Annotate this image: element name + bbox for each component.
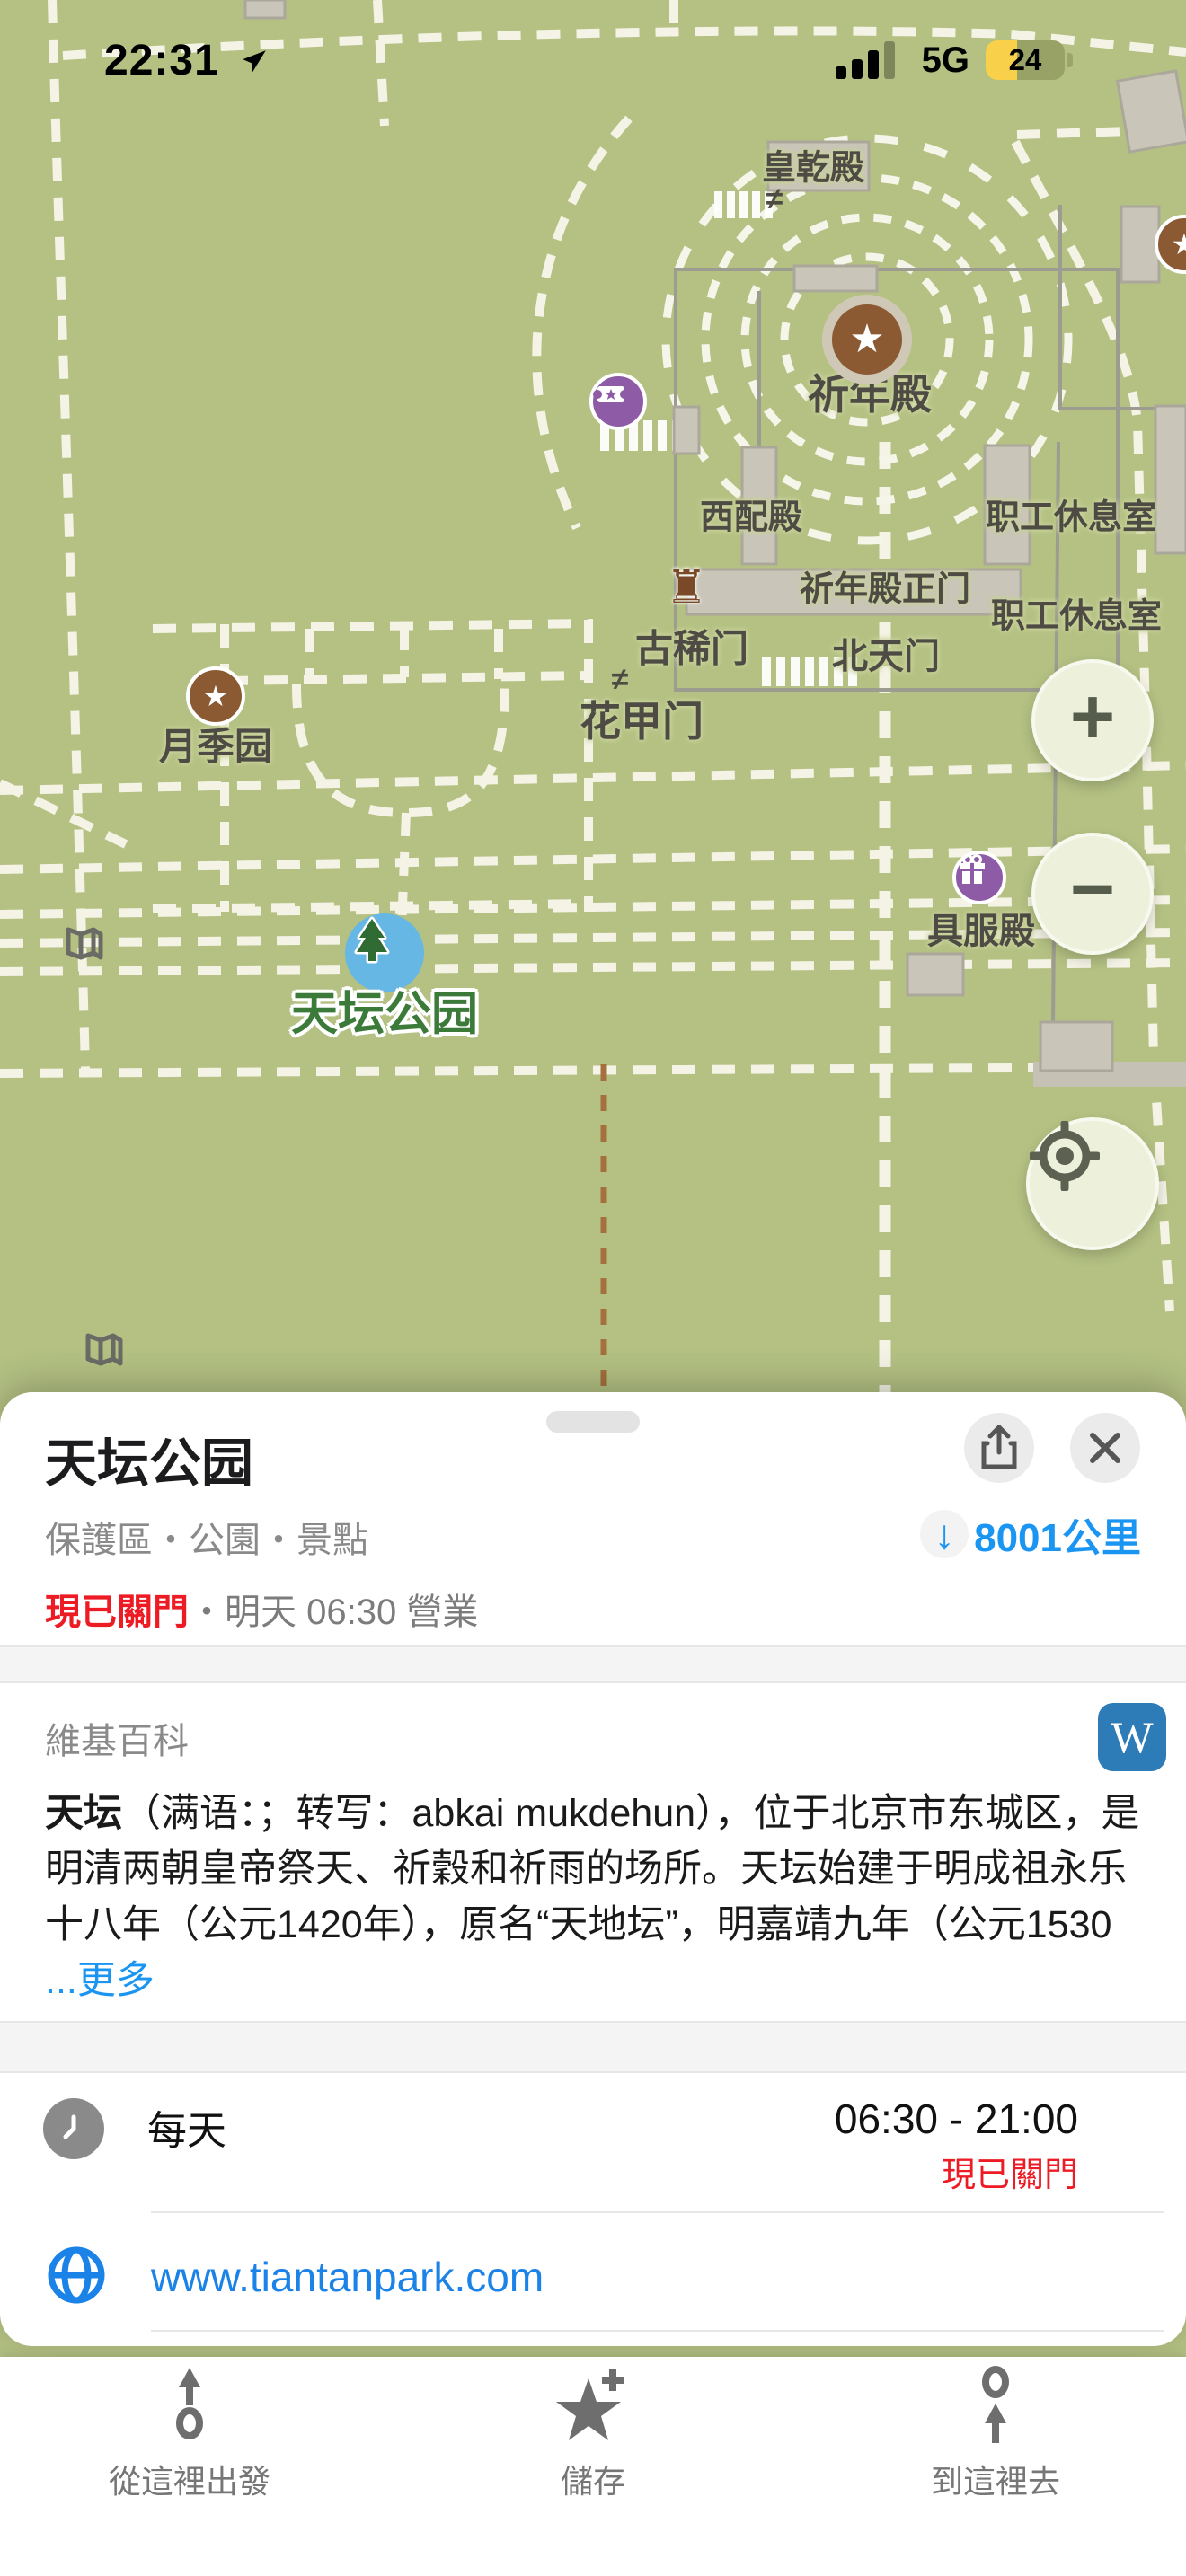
tree-icon bbox=[345, 913, 399, 971]
battery-icon: 24 bbox=[986, 40, 1065, 80]
zoom-out-button[interactable]: − bbox=[1031, 833, 1154, 955]
globe-icon bbox=[47, 2245, 106, 2309]
clock-hands-icon bbox=[56, 2111, 92, 2147]
castle-icon: ♜ bbox=[666, 564, 708, 611]
place-categories: 保護區・公園・景點 bbox=[45, 1511, 368, 1563]
wikipedia-header: 維基百科 bbox=[45, 1712, 189, 1764]
star-icon: ★ bbox=[849, 320, 884, 359]
map-canvas[interactable]: 皇乾殿 祈年殿 西配殿 职工休息室 祈年殿正门 职工休息室 古稀门 北天门 花甲… bbox=[0, 0, 1186, 1437]
gift-shop-poi[interactable] bbox=[952, 851, 1006, 904]
map-label-huajiamen: 花甲门 bbox=[580, 689, 704, 748]
locate-icon bbox=[1030, 1121, 1100, 1191]
wiki-term: 天坛 bbox=[45, 1792, 122, 1835]
wiki-body: （满语：；转写：abkai mukdehun），位于北京市东城区，是明清两朝皇帝… bbox=[45, 1792, 1140, 1946]
zoom-in-button[interactable]: + bbox=[1031, 659, 1154, 781]
bottom-toolbar: 從這裡出發 儲存 到這裡去 bbox=[0, 2357, 1186, 2576]
wikipedia-w-letter: W bbox=[1111, 1711, 1153, 1763]
save-label: 儲存 bbox=[561, 2456, 625, 2502]
map-label-guximen: 古稀门 bbox=[635, 619, 748, 674]
status-separator: ・ bbox=[189, 1592, 225, 1632]
hours-closed-status: 現已關門 bbox=[942, 2147, 1078, 2196]
section-divider-band bbox=[0, 2021, 1186, 2073]
plus-icon: + bbox=[1070, 673, 1115, 762]
signal-bars-icon bbox=[834, 40, 906, 81]
distance-value: 8001公里 bbox=[974, 1505, 1141, 1563]
wikipedia-extract[interactable]: 天坛（满语：；转写：abkai mukdehun），位于北京市东城区，是明清两朝… bbox=[45, 1786, 1146, 2008]
route-to-label: 到這裡去 bbox=[931, 2456, 1060, 2502]
network-type: 5G bbox=[922, 40, 969, 81]
gate-symbol-icon: ≠ bbox=[766, 182, 783, 217]
map-label-staff-room-2: 职工休息室 bbox=[991, 588, 1162, 638]
more-link[interactable]: ...更多 bbox=[45, 1959, 155, 2002]
map-label-staff-room-1: 职工休息室 bbox=[986, 490, 1156, 539]
close-icon bbox=[1087, 1430, 1123, 1466]
battery-nub bbox=[1067, 53, 1073, 67]
opens-tomorrow-text: 明天 06:30 營業 bbox=[225, 1592, 478, 1632]
save-star-icon bbox=[553, 2366, 633, 2447]
closed-now-text: 現已關門 bbox=[45, 1592, 189, 1632]
share-button[interactable] bbox=[964, 1413, 1034, 1483]
row-divider bbox=[151, 2211, 1164, 2213]
yuejiyuan-star-poi[interactable]: ★ bbox=[186, 666, 245, 726]
star-icon: ★ bbox=[1172, 230, 1186, 259]
ticket-icon bbox=[593, 376, 629, 412]
hours-time-range: 06:30 - 21:00 bbox=[835, 2095, 1078, 2143]
status-bar: 22:31 5G 24 bbox=[0, 0, 1186, 117]
save-button[interactable]: 儲存 bbox=[449, 2366, 737, 2502]
wikipedia-logo[interactable]: W bbox=[1098, 1703, 1166, 1771]
place-title: 天坛公园 bbox=[45, 1421, 253, 1496]
park-name-label: 天坛公园 bbox=[291, 976, 478, 1044]
route-to-icon bbox=[964, 2366, 1027, 2447]
hours-days: 每天 bbox=[147, 2098, 226, 2156]
share-icon bbox=[980, 1425, 1018, 1470]
map-label-xipeidian: 西配殿 bbox=[700, 490, 802, 539]
ticket-office-poi[interactable] bbox=[589, 373, 647, 430]
close-button[interactable] bbox=[1070, 1413, 1140, 1483]
website-link[interactable]: www.tiantanpark.com bbox=[151, 2253, 544, 2301]
battery-percent: 24 bbox=[986, 40, 1065, 80]
down-arrow-icon: ↓ bbox=[920, 1510, 969, 1558]
gift-icon bbox=[956, 854, 988, 887]
drag-handle[interactable] bbox=[546, 1411, 640, 1433]
map-label-beitianmen: 北天门 bbox=[832, 627, 940, 679]
open-status-line: 現已關門・明天 06:30 營業 bbox=[45, 1583, 478, 1635]
minus-icon: − bbox=[1070, 845, 1115, 934]
route-to-button[interactable]: 到這裡去 bbox=[852, 2366, 1139, 2502]
place-card-sheet: 天坛公园 保護區・公園・景點 ↓ 8001公里 現已關門・明天 06:30 營業… bbox=[0, 1392, 1186, 2346]
phone-screen: 皇乾殿 祈年殿 西配殿 职工休息室 祈年殿正门 职工休息室 古稀门 北天门 花甲… bbox=[0, 0, 1186, 2576]
distance-badge[interactable]: ↓ 8001公里 bbox=[920, 1505, 1141, 1563]
locate-me-button[interactable] bbox=[1026, 1117, 1159, 1250]
time-text: 22:31 bbox=[104, 37, 219, 84]
section-divider-band bbox=[0, 1645, 1186, 1683]
location-arrow-icon bbox=[239, 47, 270, 77]
gate-symbol-icon: ≠ bbox=[612, 663, 629, 698]
star-icon: ★ bbox=[203, 682, 229, 710]
row-divider bbox=[151, 2330, 1164, 2332]
map-label-jufudian: 具服殿 bbox=[927, 902, 1035, 954]
qiniandian-star-poi[interactable]: ★ bbox=[822, 295, 912, 384]
route-from-icon bbox=[158, 2366, 221, 2447]
clock-time: 22:31 bbox=[104, 36, 270, 85]
route-from-button[interactable]: 從這裡出發 bbox=[46, 2366, 333, 2502]
route-from-label: 從這裡出發 bbox=[109, 2456, 270, 2502]
hours-clock-badge bbox=[43, 2098, 104, 2159]
map-label-qiniandian-gate: 祈年殿正门 bbox=[800, 561, 970, 611]
